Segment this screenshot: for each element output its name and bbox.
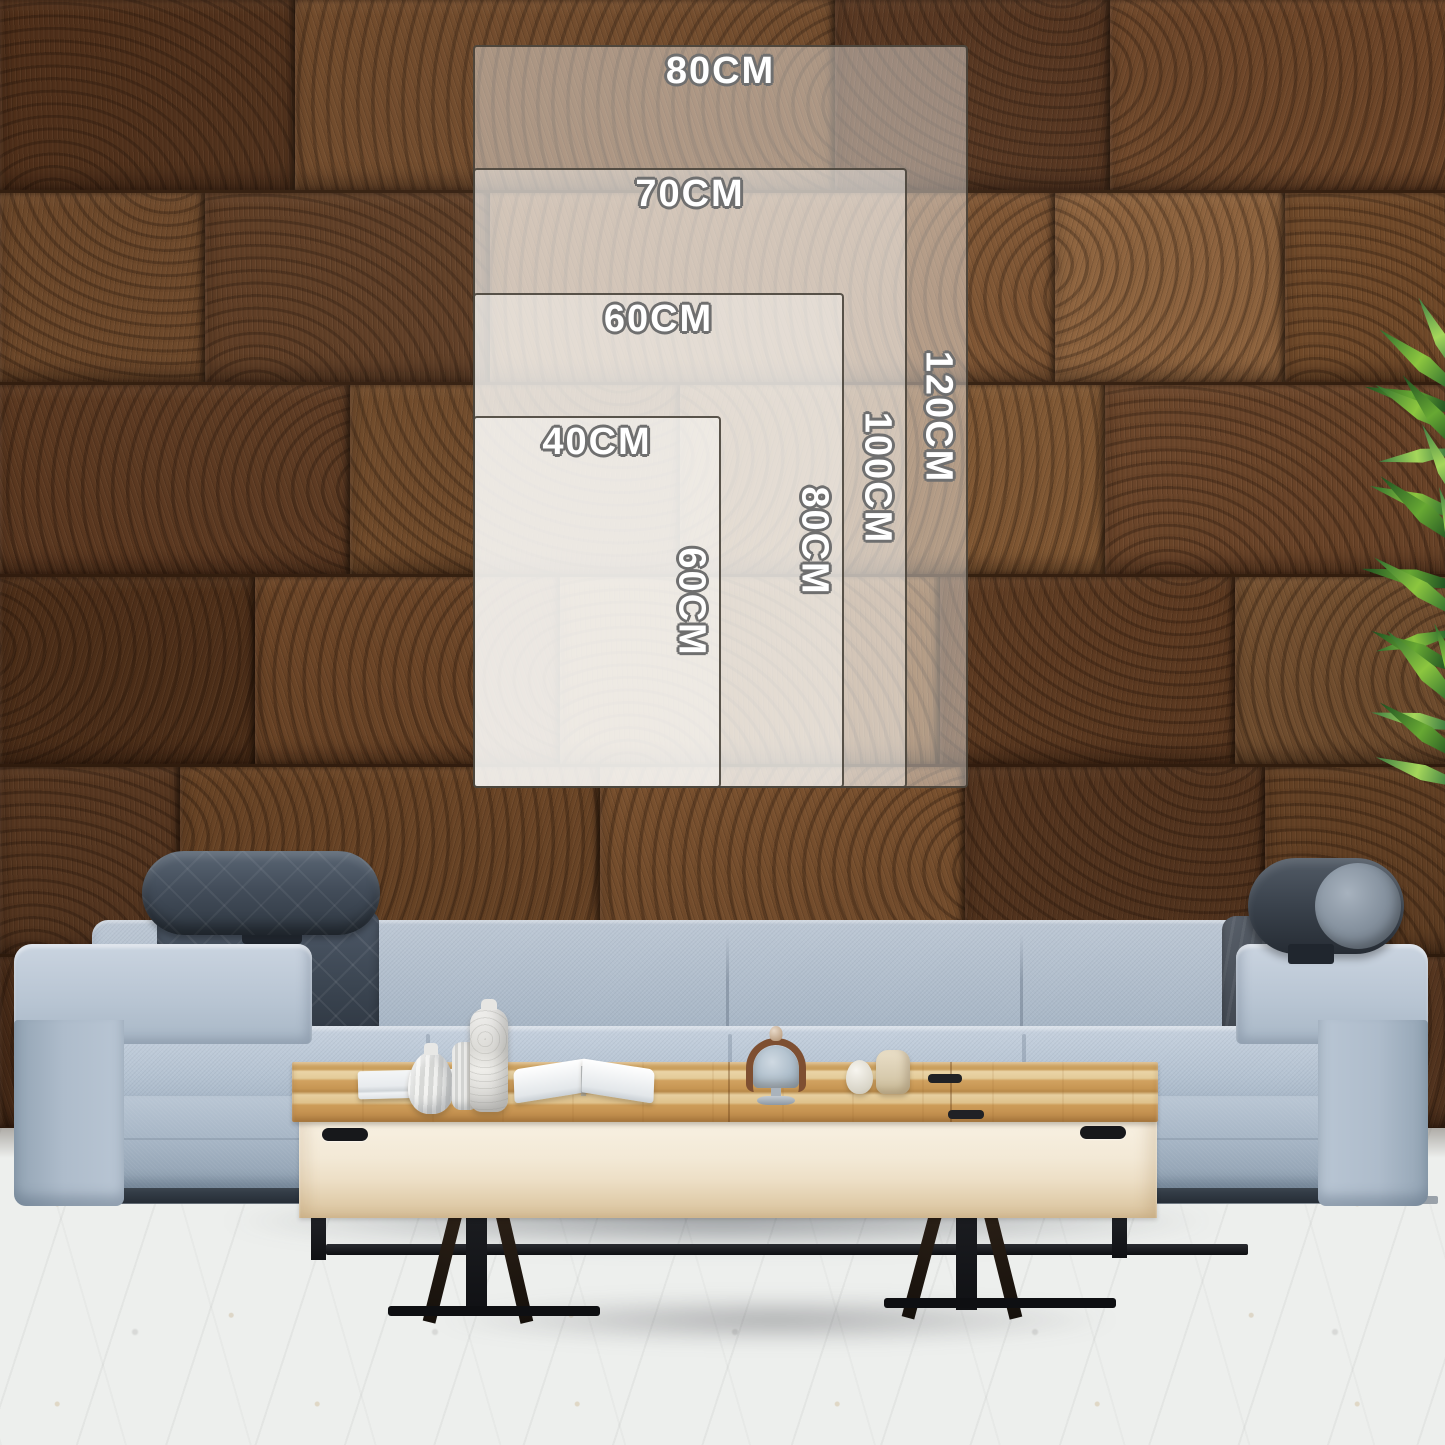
size-height-label: 60CM bbox=[672, 547, 710, 656]
dome-glass bbox=[753, 1046, 799, 1088]
table-leg-stretcher bbox=[326, 1244, 1248, 1255]
table-foot bbox=[388, 1306, 600, 1316]
table-top-slot bbox=[928, 1074, 962, 1083]
size-option-40x60: 40CM 60CM bbox=[473, 416, 721, 788]
dome-decor bbox=[744, 1026, 808, 1106]
table-top-seam bbox=[728, 1062, 730, 1122]
book-spine bbox=[581, 1066, 586, 1096]
dome-base bbox=[757, 1096, 795, 1105]
size-width-label: 70CM bbox=[475, 175, 905, 213]
tall-vase bbox=[470, 1008, 508, 1112]
table-foot bbox=[884, 1298, 1116, 1308]
cup-decor bbox=[876, 1050, 910, 1094]
size-height-label: 100CM bbox=[858, 412, 896, 545]
dome-knob bbox=[770, 1026, 783, 1041]
size-width-label: 60CM bbox=[475, 300, 842, 338]
egg-decor bbox=[846, 1060, 873, 1094]
drawer-handle bbox=[1080, 1126, 1126, 1139]
size-height-label: 80CM bbox=[795, 486, 833, 595]
open-book bbox=[514, 1058, 654, 1098]
size-width-label: 40CM bbox=[475, 423, 719, 461]
size-width-label: 80CM bbox=[475, 52, 966, 90]
size-height-label: 120CM bbox=[919, 350, 957, 483]
drawer-handle bbox=[322, 1128, 368, 1141]
size-guide-scene: 80CM 120CM 70CM 100CM 60CM 80CM 40CM 60C… bbox=[0, 0, 1445, 1445]
table-drawer-box bbox=[299, 1118, 1157, 1218]
table-top-slot bbox=[948, 1110, 984, 1119]
